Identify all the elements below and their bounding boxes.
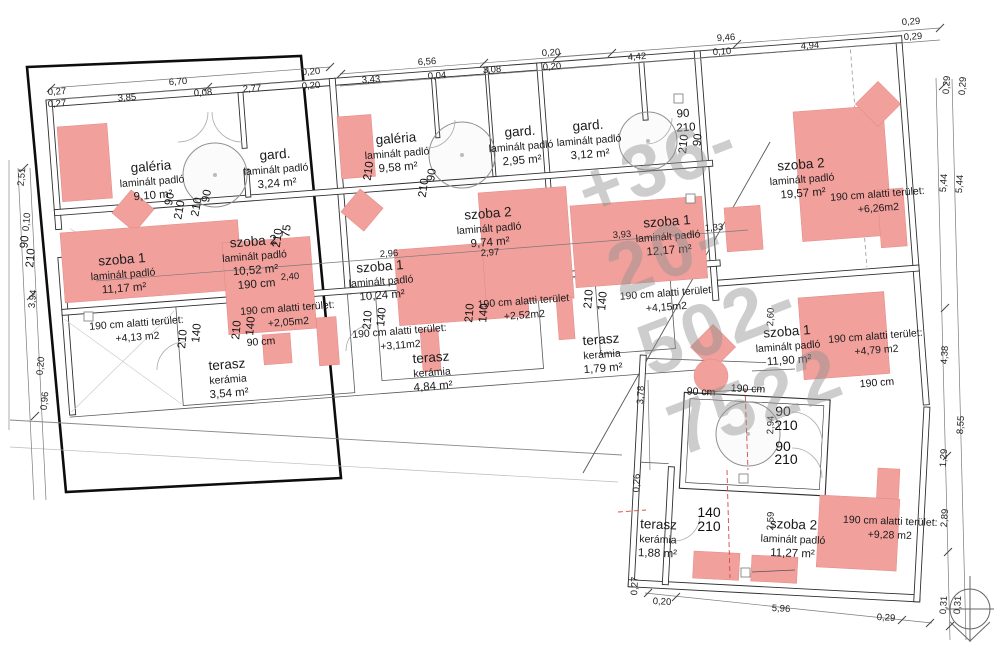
door-label: 90 [676, 108, 690, 121]
dim-label: 1,29 [938, 448, 950, 467]
dim-label: 6,56 [417, 56, 436, 68]
dim-label: 0,29 [901, 16, 920, 28]
annotation-u1-left: 190 cm alatti terület:+4,13 m2 [89, 314, 185, 348]
dim-label: 2,51 [16, 167, 29, 186]
dim-label: 0,20 [652, 596, 671, 608]
room-u3-szoba1: szoba 1laminált padló12,17 m² [634, 211, 702, 260]
dim-label: 0,08 [193, 87, 212, 99]
clearance-90cm-annex: 90 cm [687, 386, 716, 399]
clearance-90cm-u1: 90 cm [246, 335, 275, 349]
dim-label: 0,10 [712, 46, 731, 58]
dim-label: 2,60 [765, 308, 777, 327]
dim-label: 3,94 [27, 289, 40, 308]
dim-label: 3,85 [117, 92, 136, 104]
door-label: 210 [271, 228, 285, 249]
room-u3-gard: gard.laminált padló3,12 m² [555, 115, 623, 164]
annotation-u3-left: 190 cm alatti terület+2,52m2 [477, 292, 570, 326]
door-label: 210 [677, 134, 691, 154]
dim-label: 2,77 [242, 83, 261, 95]
annotation-u4-mid: 190 cm alatti terület:+4,79 m2 [828, 327, 924, 361]
room-u4-terasz: teraszkerámia1,88 m² [638, 516, 679, 562]
door-label: 140 [596, 291, 610, 311]
door-label: 210 [417, 178, 432, 199]
dim-label: 0,20 [301, 80, 320, 92]
dim-label: 0,29 [876, 612, 895, 624]
door-label: 140 [477, 303, 491, 323]
dim-label: 0,20 [542, 61, 561, 73]
room-u2-szoba1: szoba 1laminált padló10,24 m² [347, 256, 415, 305]
dim-label: 5,96 [771, 603, 790, 615]
dim-label: 2,59 [765, 512, 777, 531]
room-u3-terasz: teraszkerámia1,79 m² [581, 330, 623, 377]
dim-label: 2,94 [765, 416, 777, 435]
door-label: 210 [230, 320, 244, 340]
dim-label: 5,44 [938, 173, 950, 192]
clearance-190cm-annex: 190 cm [731, 382, 766, 395]
annotation-u4-top: 190 cm alatti terület:+6,26m2 [830, 185, 926, 219]
dim-label: 0,29 [941, 75, 953, 94]
dim-label: 0,20 [35, 356, 48, 375]
room-u2-gard: gard.laminált padló2,95 m² [487, 121, 555, 170]
clearance-190cm-u4: 190 cm [859, 376, 894, 391]
door-label: 90 [200, 189, 214, 204]
dim-label: 3,78 [635, 386, 647, 405]
dim-label: 1,33 [704, 222, 723, 234]
dim-label: 2,96 [379, 248, 398, 260]
room-u4-szoba2-top: szoba 2laminált padló19,57 m² [768, 154, 836, 203]
room-u2-terasz: teraszkerámia4,84 m² [411, 348, 453, 395]
door-label: 210 [697, 518, 720, 534]
door-label: 140 [190, 323, 204, 343]
door-label: 210 [582, 289, 596, 309]
dim-label: 3,43 [361, 74, 380, 86]
dim-label: 0,27 [47, 86, 66, 98]
floor-plan-canvas: galérialaminált padló9,10 m² gard.laminá… [0, 0, 1000, 647]
room-u1-gard: gard.laminált padló3,24 m² [242, 144, 310, 193]
dim-label: 0,96 [39, 391, 52, 410]
door-label: 210 [774, 451, 797, 467]
dim-label: 4,94 [800, 40, 819, 52]
room-u1-szoba1: szoba 1laminált padló11,17 m² [89, 249, 157, 298]
dim-label: 0,27 [629, 577, 641, 596]
dim-label: 2,97 [480, 247, 499, 259]
dim-label: 3,93 [612, 229, 631, 241]
labels-layer: galérialaminált padló9,10 m² gard.laminá… [0, 0, 1000, 647]
dim-label: 4,42 [627, 51, 646, 63]
door-label: 210 [361, 310, 375, 330]
dim-label: 0,20 [541, 47, 560, 59]
annotation-u4-bottom: 190 cm alatti terület:+9,28 m2 [842, 514, 937, 545]
room-u2-szoba2: szoba 2laminált padló9,74 m² [455, 203, 523, 252]
room-u4-szoba1: szoba 1laminált padló11,90 m² [754, 321, 822, 370]
dim-label: 9,46 [716, 32, 735, 44]
door-label: 140 [375, 307, 389, 327]
dim-label: 0,29 [903, 31, 922, 43]
dim-label: 2,89 [939, 508, 951, 527]
dim-label: 0,10 [21, 212, 34, 231]
dim-label: 0,04 [427, 70, 446, 82]
door-label: 210 [176, 329, 190, 349]
dim-label: 5,44 [954, 174, 966, 193]
door-label: 210 [463, 303, 477, 323]
dim-label: 6,70 [168, 76, 187, 88]
dim-label: 0,31 [952, 595, 964, 614]
dim-label: 0,27 [47, 98, 66, 110]
dim-label: 2,40 [280, 271, 299, 283]
dim-label: 0,29 [957, 76, 969, 95]
door-label: 140 [244, 316, 258, 336]
door-label: 210 [774, 417, 797, 433]
dim-label: 4,38 [939, 345, 951, 364]
dim-label: 0,26 [631, 474, 643, 493]
room-u1-terasz: teraszkerámia3,54 m² [207, 355, 249, 402]
door-label: 210 [24, 248, 38, 268]
door-label: 90 [18, 235, 31, 249]
dim-label: 3,08 [482, 64, 501, 76]
dim-label: 0,20 [301, 66, 320, 78]
door-label: 90 [691, 133, 704, 147]
dim-label: 0,31 [938, 595, 950, 614]
door-label: 210 [362, 161, 377, 182]
door-label: 210 [172, 200, 187, 221]
annotation-u3-right: 190 cm alatti terület+4,15m2 [619, 284, 712, 318]
dim-label: 8,55 [955, 415, 967, 434]
